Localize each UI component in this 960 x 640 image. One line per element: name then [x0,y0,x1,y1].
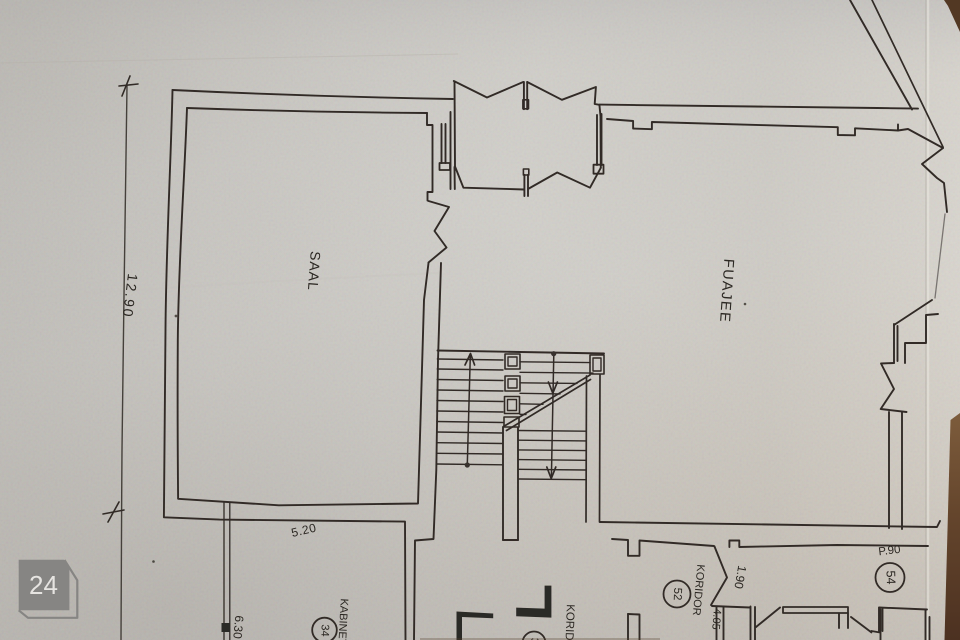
svg-text:6.30: 6.30 [230,615,246,640]
svg-text:KORIDOR: KORIDOR [562,604,576,640]
svg-text:34: 34 [318,624,330,637]
svg-text:52: 52 [671,587,683,600]
svg-text:KABINET: KABINET [335,598,349,640]
svg-text:SAAL: SAAL [305,251,324,292]
svg-text:4.05: 4.05 [709,608,723,630]
svg-text:54: 54 [883,570,897,584]
svg-text:24: 24 [29,570,58,600]
